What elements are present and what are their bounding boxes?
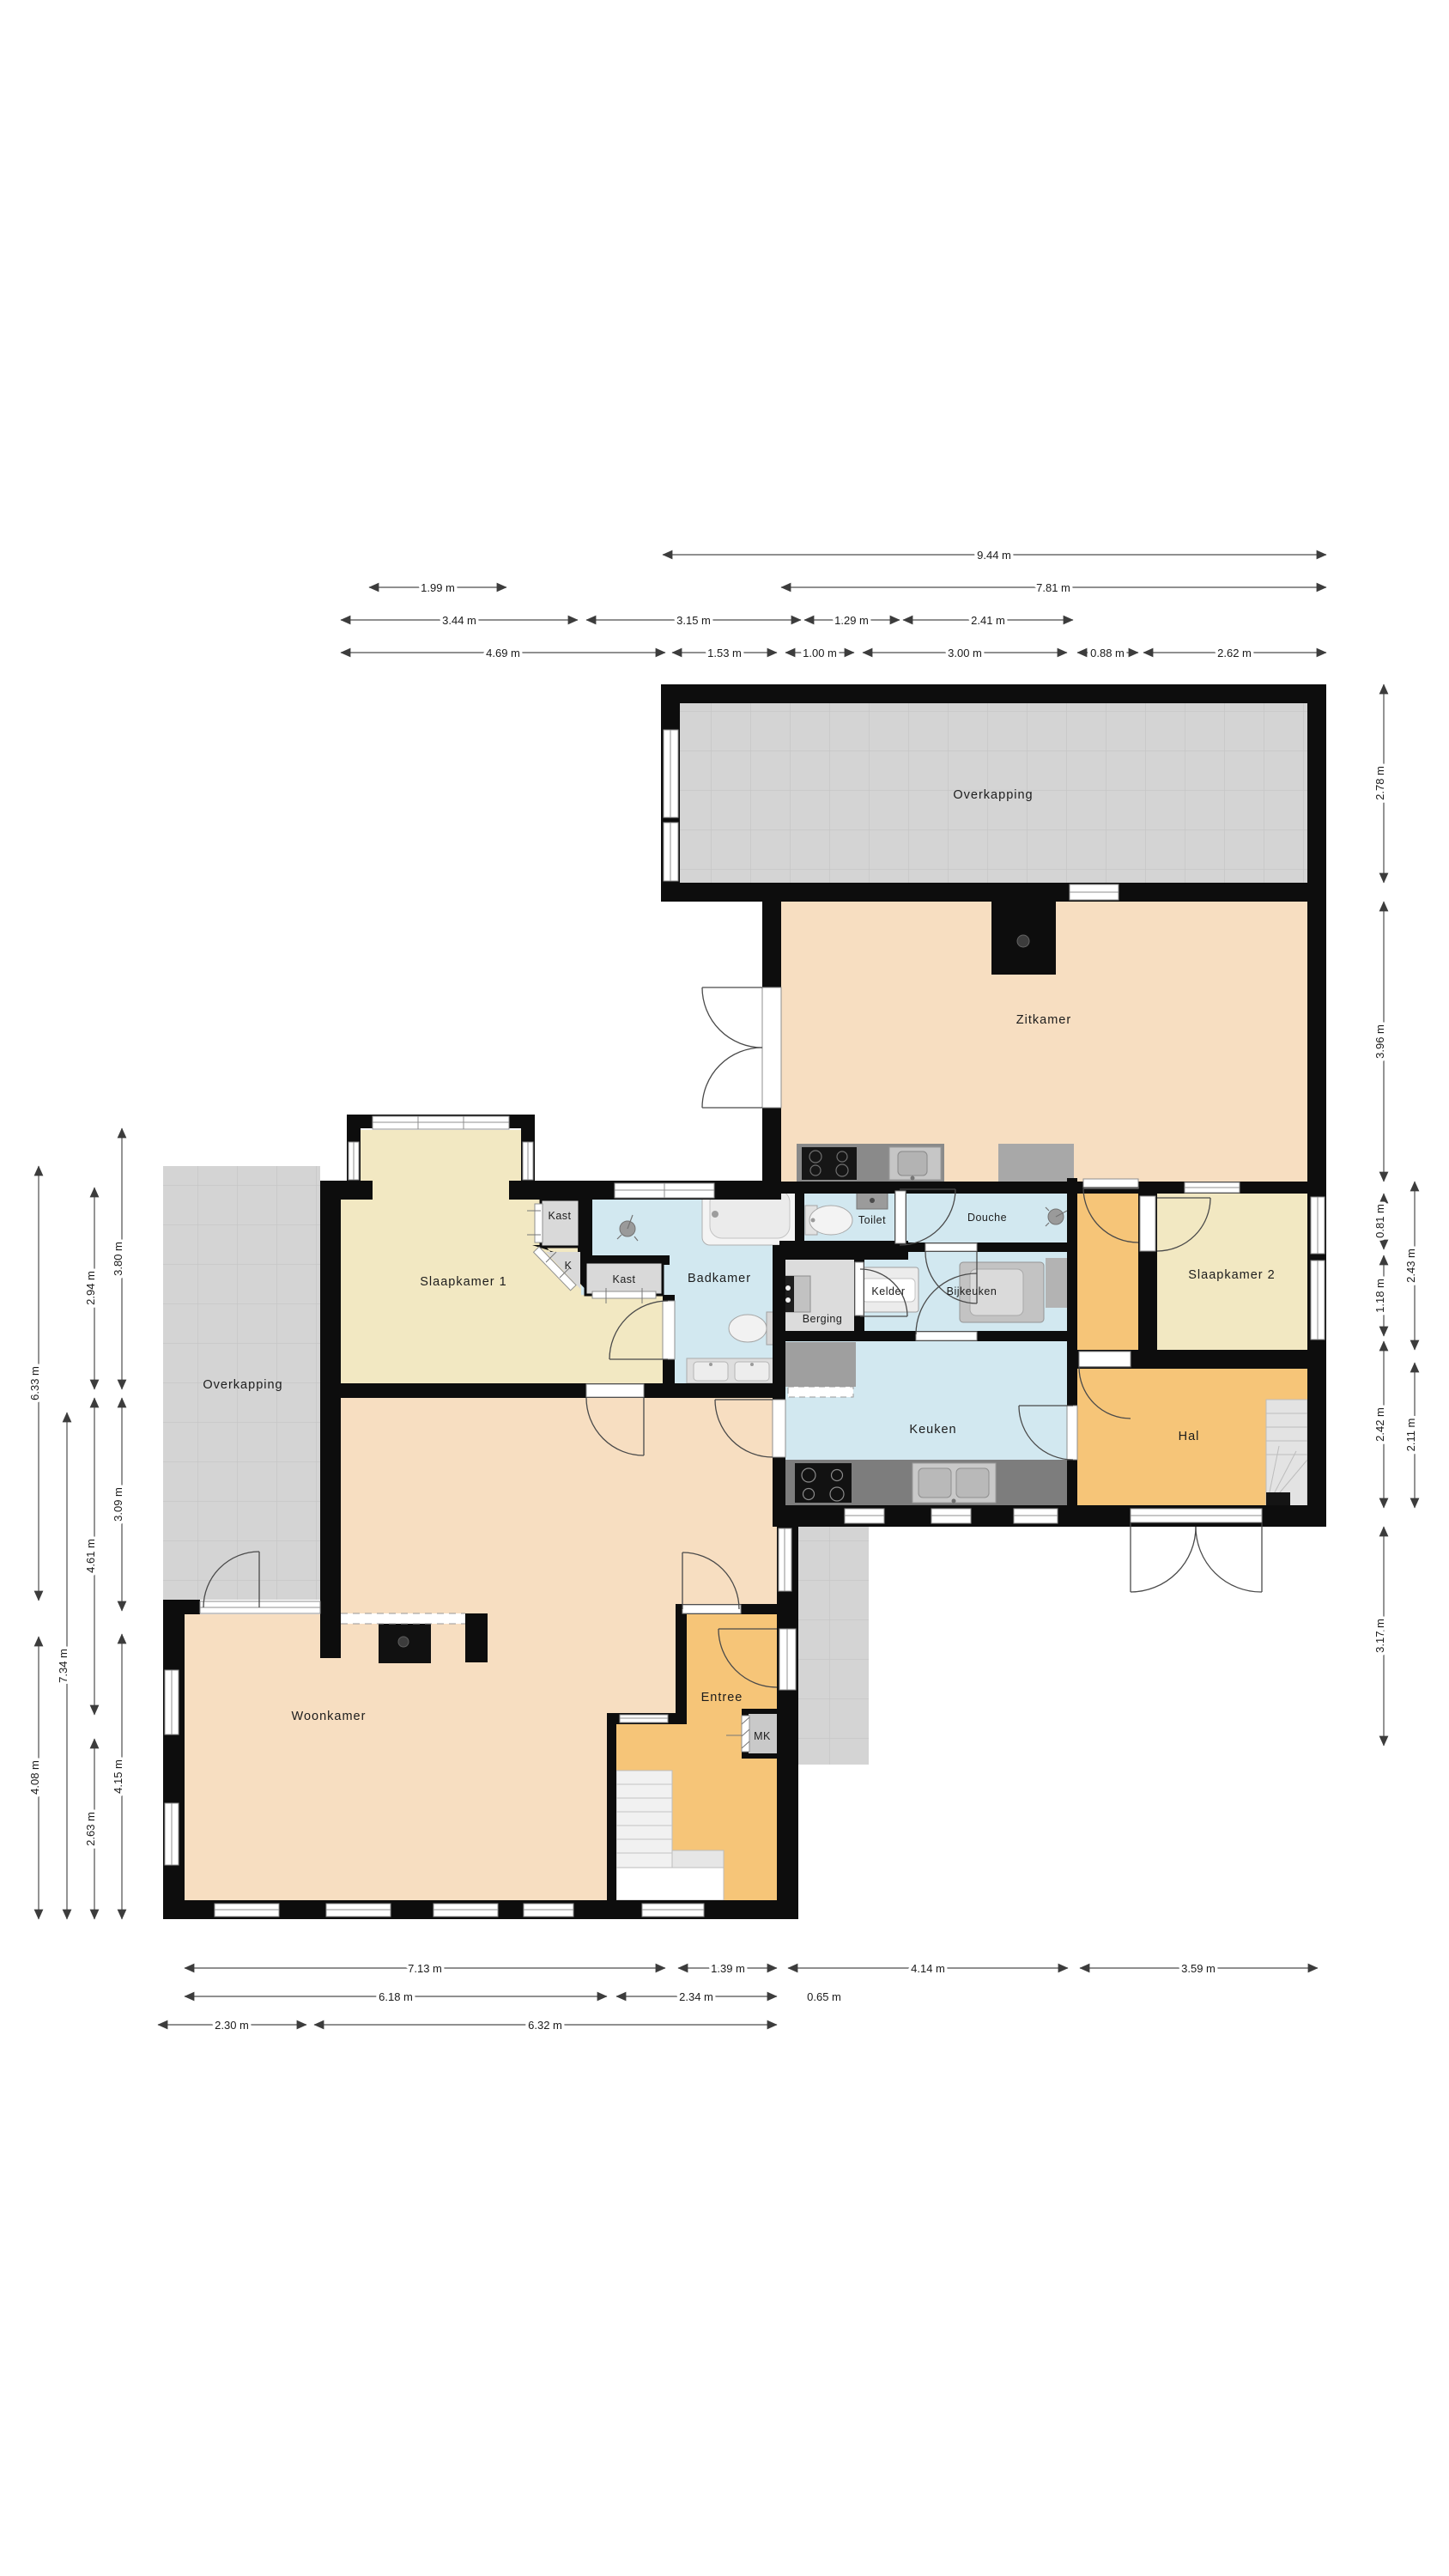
label-douche: Douche: [967, 1212, 1007, 1224]
window: [326, 1904, 391, 1917]
dim: 3.44 m: [442, 614, 476, 627]
window: [433, 1904, 498, 1917]
dim: 3.59 m: [1181, 1962, 1216, 1975]
floorplan-canvas: Overkapping Zitkamer Toilet Douche Kelde…: [0, 0, 1449, 2576]
window: [165, 1803, 179, 1865]
window: [215, 1904, 279, 1917]
dim: 4.08 m: [28, 1760, 41, 1795]
dim: 2.11 m: [1404, 1419, 1417, 1452]
dim: 7.13 m: [408, 1962, 442, 1975]
window: [779, 1528, 791, 1591]
dim: 2.42 m: [1373, 1407, 1386, 1442]
dim: 1.00 m: [803, 647, 837, 659]
label-overkapping-left: Overkapping: [203, 1378, 282, 1392]
dim: 1.99 m: [421, 581, 455, 594]
label-bijkeuken: Bijkeuken: [947, 1285, 997, 1297]
dim: 6.33 m: [28, 1366, 41, 1400]
label-overkapping-top: Overkapping: [953, 788, 1033, 802]
dim: 4.15 m: [112, 1759, 124, 1794]
dimensions-right: 2.78 m 3.96 m 0.81 m 1.18 m 2.42 m 2.43 …: [1373, 684, 1417, 1746]
dim: 2.62 m: [1217, 647, 1252, 659]
kast1-box: [541, 1200, 579, 1247]
window: [1070, 884, 1119, 900]
window: [845, 1509, 884, 1523]
label-berging: Berging: [803, 1313, 843, 1325]
dim: 3.80 m: [112, 1242, 124, 1276]
window: [1185, 1182, 1240, 1193]
window: [615, 1183, 714, 1198]
window: [1311, 1261, 1325, 1340]
label-toilet: Toilet: [858, 1214, 886, 1226]
keuken-cabinet-dash: [788, 1387, 853, 1397]
dim: 7.81 m: [1036, 581, 1070, 594]
overkapping-sill: [200, 1601, 320, 1613]
floorplan-page: Overkapping Zitkamer Toilet Douche Kelde…: [0, 0, 1449, 2576]
zitkamer-cooktop-icon: [802, 1147, 857, 1180]
dim: 1.29 m: [834, 614, 869, 627]
label-slaapkamer2: Slaapkamer 2: [1188, 1268, 1275, 1282]
dim: 4.14 m: [911, 1962, 945, 1975]
label-kelder: Kelder: [871, 1285, 905, 1297]
ceiling-break: [341, 1613, 465, 1624]
dim: 6.18 m: [379, 1990, 413, 2003]
label-keuken: Keuken: [909, 1423, 956, 1437]
dim: 6.32 m: [528, 2019, 562, 2032]
label-badkamer: Badkamer: [688, 1272, 751, 1285]
hal-corridor-floor: [1077, 1189, 1138, 1350]
dim: 3.96 m: [1373, 1024, 1386, 1059]
dimensions-top: 9.44 m 1.99 m 7.81 m 3.44 m 3.15 m 1.29 …: [341, 549, 1326, 659]
dimensions-bottom: 7.13 m 1.39 m 4.14 m 3.59 m 6.18 m 2.34 …: [158, 1962, 1318, 2032]
label-kast2: Kast: [612, 1273, 635, 1285]
dim: 2.30 m: [215, 2019, 249, 2032]
badkamer-toilet-icon: [729, 1315, 767, 1342]
window: [664, 823, 678, 881]
dim: 2.78 m: [1373, 766, 1386, 800]
dim: 3.17 m: [1373, 1619, 1386, 1653]
keuken-cabinet: [785, 1342, 856, 1387]
window: [779, 1629, 796, 1690]
dimensions-left: 6.33 m 4.08 m 7.34 m 2.94 m 4.61 m 2.63 …: [28, 1128, 124, 1919]
front-door-sill: [1131, 1509, 1262, 1522]
window: [931, 1509, 971, 1523]
bijkeuken-counter: [1046, 1258, 1067, 1308]
dim: 3.15 m: [676, 614, 711, 627]
window: [664, 730, 678, 817]
dim: 1.39 m: [711, 1962, 745, 1975]
dim: 0.65 m: [807, 1990, 841, 2003]
window: [524, 1904, 573, 1917]
window: [620, 1715, 668, 1722]
dim: 4.69 m: [486, 647, 520, 659]
dim: 3.09 m: [112, 1487, 124, 1522]
hal-stairs: [1266, 1400, 1307, 1509]
label-hal: Hal: [1179, 1430, 1200, 1443]
dim: 9.44 m: [977, 549, 1011, 562]
window: [1311, 1197, 1325, 1254]
dim: 2.41 m: [971, 614, 1005, 627]
dim: 2.34 m: [679, 1990, 713, 2003]
label-mk: MK: [754, 1730, 771, 1742]
dim: 1.18 m: [1373, 1279, 1386, 1313]
slaapkamer1-bay-floor: [361, 1130, 521, 1204]
label-kast1: Kast: [548, 1210, 571, 1222]
dim: 2.63 m: [84, 1812, 97, 1846]
terrace-path: [791, 1526, 869, 1765]
dim: 2.94 m: [84, 1271, 97, 1305]
window: [1014, 1509, 1058, 1523]
label-zitkamer: Zitkamer: [1016, 1013, 1071, 1027]
dim: 0.88 m: [1090, 647, 1125, 659]
window: [642, 1904, 704, 1917]
chimney-dot: [1017, 935, 1029, 947]
dim: 7.34 m: [57, 1649, 70, 1683]
dim: 3.00 m: [948, 647, 982, 659]
window: [165, 1670, 179, 1735]
label-kast-k: K: [565, 1260, 573, 1272]
dim: 4.61 m: [84, 1539, 97, 1573]
label-slaapkamer1: Slaapkamer 1: [420, 1275, 506, 1289]
dim: 2.43 m: [1404, 1249, 1417, 1283]
dim: 1.53 m: [707, 647, 742, 659]
dim: 0.81 m: [1373, 1204, 1386, 1238]
label-woonkamer: Woonkamer: [292, 1710, 367, 1723]
toilet-bowl-icon: [809, 1206, 852, 1235]
label-entree: Entree: [701, 1691, 743, 1704]
